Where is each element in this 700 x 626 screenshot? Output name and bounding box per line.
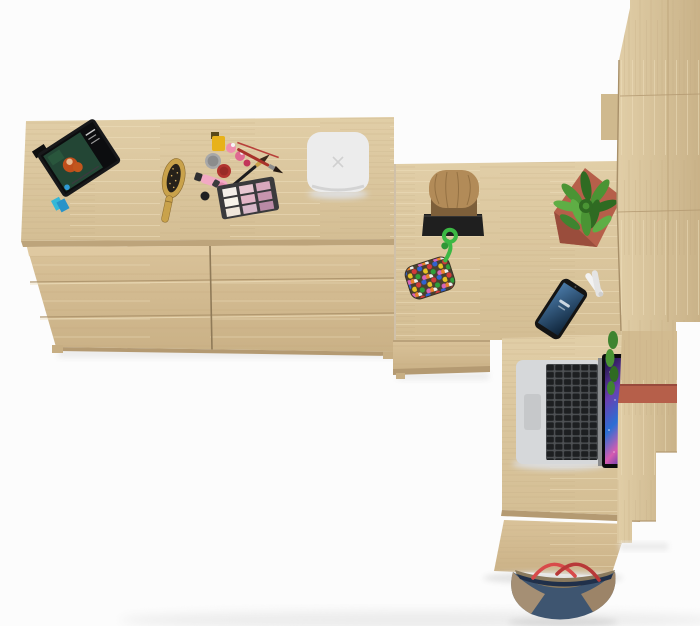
cabinet-foot <box>396 373 405 379</box>
jar-silver-lid <box>208 156 219 167</box>
laptop-keys <box>546 364 598 460</box>
leaf-sliver-4 <box>607 381 615 395</box>
laptop-hinge <box>598 358 602 466</box>
jar-red-lid <box>220 167 229 176</box>
furniture-render <box>0 0 700 626</box>
dresser-foot-right <box>383 352 393 359</box>
polish-dark <box>201 192 210 201</box>
leaf-sliver-1 <box>608 331 618 349</box>
smart-speaker <box>307 132 369 199</box>
mini-bottle-red <box>244 160 251 167</box>
dresser-foot-left <box>52 345 63 353</box>
mid-block-grain <box>620 331 677 384</box>
laptop-trackpad <box>524 394 541 430</box>
wardrobe-back-tab <box>601 94 619 140</box>
leaf-sliver-2 <box>606 349 615 367</box>
mini-bottle-cap <box>231 143 235 147</box>
log-stool <box>422 170 484 236</box>
hidden-pot-strip <box>618 384 677 403</box>
wardrobe-main-grain <box>617 0 700 331</box>
furniture-render-stage: Top-view 3D render of a Sonoma oak furni… <box>0 0 700 626</box>
column-shadow <box>620 543 668 550</box>
nail-polish-yellow <box>212 136 225 151</box>
leaf-sliver-3 <box>610 366 619 382</box>
under-desk-cabinet <box>393 340 490 380</box>
